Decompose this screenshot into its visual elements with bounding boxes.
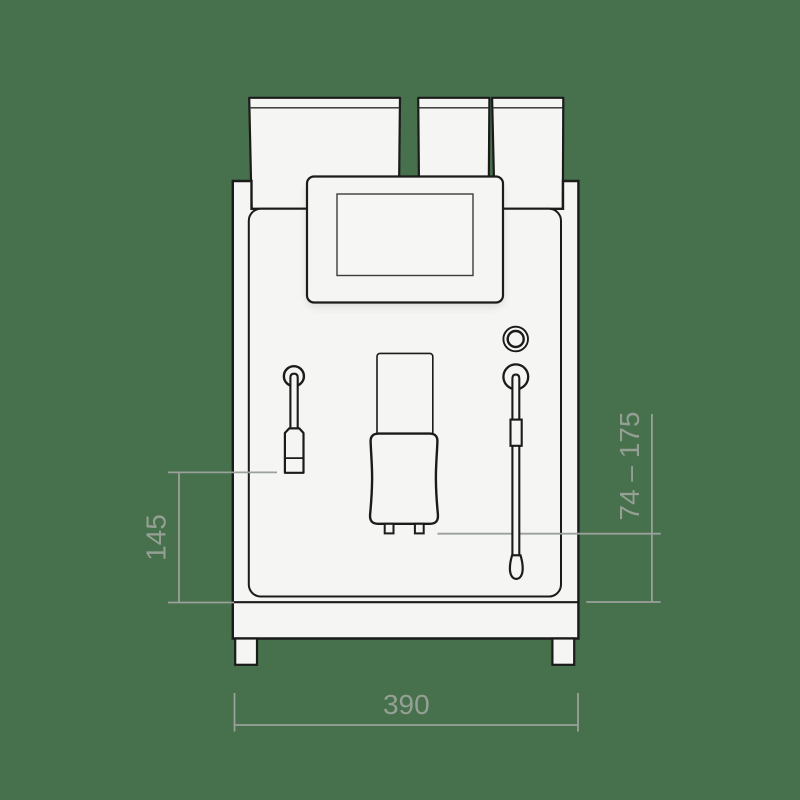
svg-text:145: 145 [141,514,172,561]
svg-text:74 – 175: 74 – 175 [614,412,645,521]
svg-text:390: 390 [383,689,430,720]
